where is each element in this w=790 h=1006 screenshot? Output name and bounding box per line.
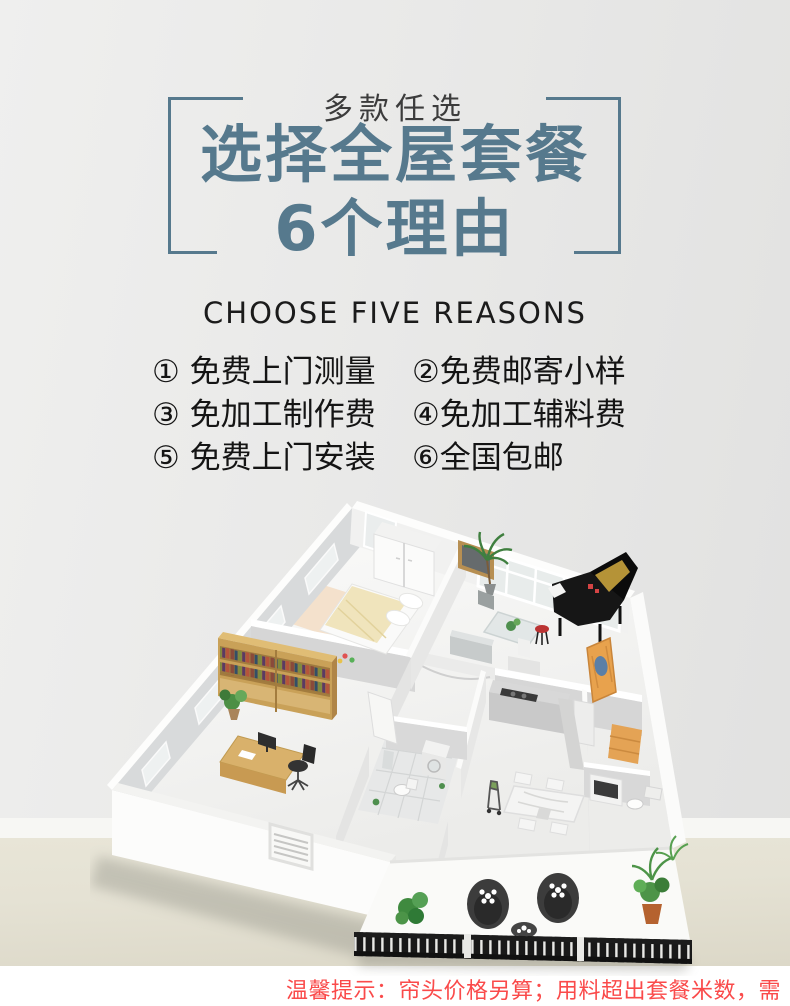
reason-item-4: ④免加工辅料费 [412, 399, 652, 432]
small-basin [644, 786, 662, 800]
main-title-line2: 6个理由 [0, 198, 790, 260]
reason-item-3: ③ 免加工制作费 [152, 399, 380, 432]
main-title-line1: 选择全屋套餐 [0, 124, 790, 186]
reasons-list: ① 免费上门测量 ②免费邮寄小样 ③ 免加工制作费 ④免加工辅料费 ⑤ 免费上门… [152, 356, 652, 475]
reason-item-1: ① 免费上门测量 [152, 356, 380, 389]
egg-chair-1 [467, 879, 509, 929]
washing-machine [422, 740, 450, 780]
floorplan-illustration [90, 488, 710, 976]
wood-cabinet [608, 724, 642, 764]
orange-door [587, 638, 616, 702]
small-toilet [627, 799, 643, 809]
egg-chair-2 [537, 873, 579, 923]
promo-banner: 多款任选 选择全屋套餐 6个理由 CHOOSE FIVE REASONS ① 免… [0, 0, 790, 1006]
bath-column [382, 750, 394, 770]
english-subtitle: CHOOSE FIVE REASONS [0, 296, 790, 330]
reason-item-2: ②免费邮寄小样 [412, 356, 652, 389]
reason-item-5: ⑤ 免费上门安装 [152, 442, 380, 475]
tv-cabinet [590, 774, 622, 806]
balcony-table [511, 922, 537, 938]
footer-note: 温馨提示：帘头价格另算；用料超出套餐米数，需补差价 [286, 973, 790, 1006]
piano-stool [535, 625, 549, 645]
reason-item-6: ⑥全国包邮 [412, 442, 652, 475]
